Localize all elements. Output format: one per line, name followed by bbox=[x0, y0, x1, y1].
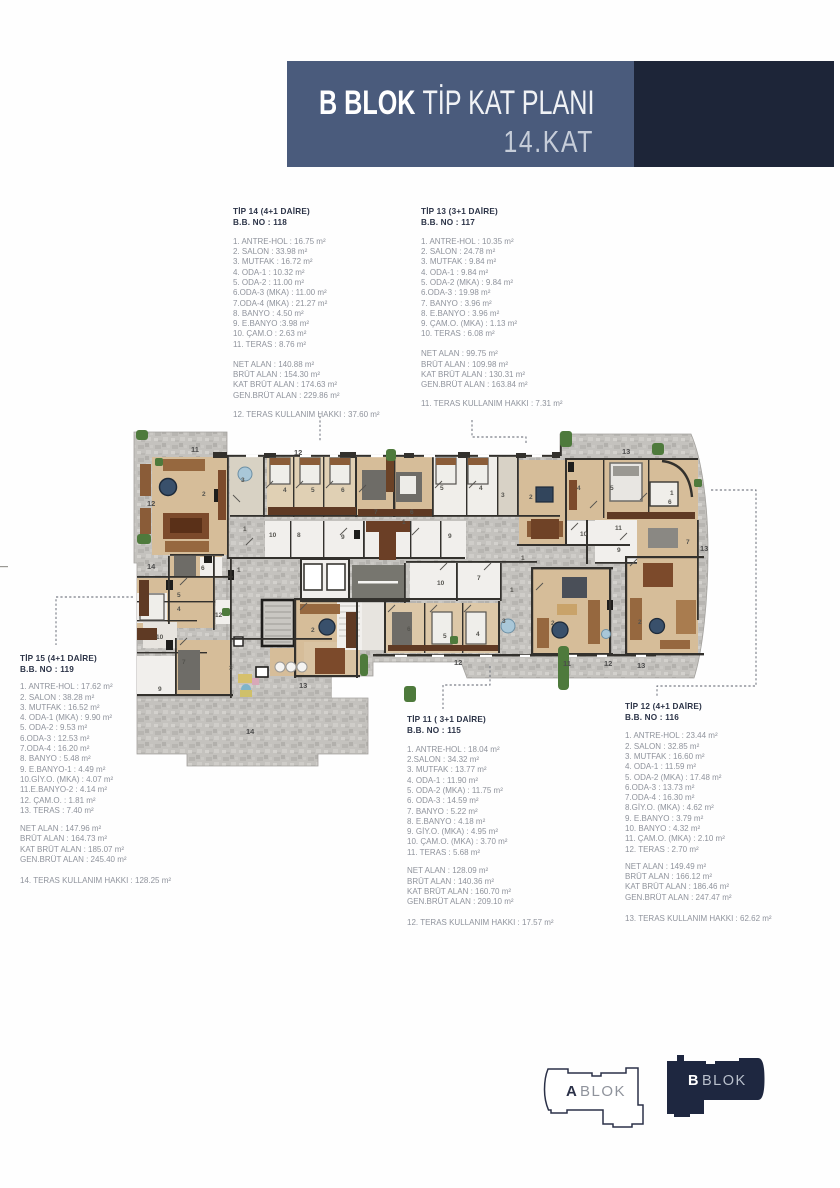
svg-text:12: 12 bbox=[454, 658, 462, 667]
svg-text:10: 10 bbox=[437, 580, 445, 587]
svg-text:5: 5 bbox=[177, 592, 181, 599]
svg-text:2: 2 bbox=[202, 491, 206, 498]
svg-text:6: 6 bbox=[407, 626, 411, 633]
svg-text:9: 9 bbox=[158, 686, 162, 693]
svg-text:7: 7 bbox=[477, 575, 481, 582]
svg-text:6: 6 bbox=[201, 565, 205, 572]
svg-text:1: 1 bbox=[237, 567, 241, 574]
svg-text:4: 4 bbox=[479, 485, 483, 492]
svg-text:12: 12 bbox=[294, 448, 302, 457]
svg-text:2: 2 bbox=[529, 494, 533, 501]
svg-text:13: 13 bbox=[700, 544, 708, 553]
svg-text:10: 10 bbox=[156, 634, 164, 641]
svg-text:1: 1 bbox=[510, 587, 514, 594]
svg-text:13: 13 bbox=[637, 661, 645, 670]
svg-text:9: 9 bbox=[617, 547, 621, 554]
svg-text:11: 11 bbox=[191, 445, 199, 454]
svg-text:6: 6 bbox=[341, 487, 345, 494]
svg-text:4: 4 bbox=[577, 485, 581, 492]
svg-text:4: 4 bbox=[476, 631, 480, 638]
svg-text:12: 12 bbox=[147, 499, 155, 508]
svg-text:BLOK: BLOK bbox=[702, 1073, 747, 1089]
svg-text:7: 7 bbox=[182, 659, 186, 666]
svg-text:5: 5 bbox=[443, 633, 447, 640]
svg-text:3: 3 bbox=[502, 618, 506, 625]
svg-text:3: 3 bbox=[501, 492, 505, 499]
svg-text:8: 8 bbox=[297, 532, 301, 539]
svg-text:B: B bbox=[688, 1073, 698, 1089]
svg-text:11: 11 bbox=[563, 659, 571, 668]
svg-text:13: 13 bbox=[299, 681, 307, 690]
svg-text:BLOK: BLOK bbox=[580, 1083, 626, 1100]
svg-text:14: 14 bbox=[147, 562, 156, 571]
svg-text:7: 7 bbox=[374, 509, 378, 516]
svg-text:6: 6 bbox=[668, 499, 672, 506]
svg-text:6: 6 bbox=[410, 509, 414, 516]
svg-text:2: 2 bbox=[551, 620, 555, 627]
svg-text:13: 13 bbox=[622, 447, 630, 456]
svg-text:12: 12 bbox=[215, 612, 223, 619]
svg-text:9: 9 bbox=[448, 533, 452, 540]
svg-text:1: 1 bbox=[521, 555, 525, 562]
svg-text:10: 10 bbox=[580, 531, 588, 538]
svg-text:5: 5 bbox=[610, 485, 614, 492]
svg-text:9: 9 bbox=[341, 534, 345, 541]
svg-text:2: 2 bbox=[311, 627, 315, 634]
svg-text:12: 12 bbox=[604, 659, 612, 668]
svg-text:1: 1 bbox=[402, 519, 406, 526]
svg-text:10: 10 bbox=[269, 532, 277, 539]
svg-text:5: 5 bbox=[311, 487, 315, 494]
svg-text:5: 5 bbox=[440, 485, 444, 492]
svg-text:3: 3 bbox=[229, 665, 233, 672]
svg-text:4: 4 bbox=[283, 487, 287, 494]
svg-text:1: 1 bbox=[670, 490, 674, 497]
svg-text:4: 4 bbox=[177, 606, 181, 613]
svg-text:14: 14 bbox=[246, 727, 255, 736]
svg-text:1: 1 bbox=[243, 526, 247, 533]
svg-text:7: 7 bbox=[686, 539, 690, 546]
svg-text:3: 3 bbox=[241, 477, 245, 484]
svg-text:A: A bbox=[566, 1083, 577, 1100]
svg-text:11: 11 bbox=[615, 525, 622, 532]
svg-text:2: 2 bbox=[638, 619, 642, 626]
